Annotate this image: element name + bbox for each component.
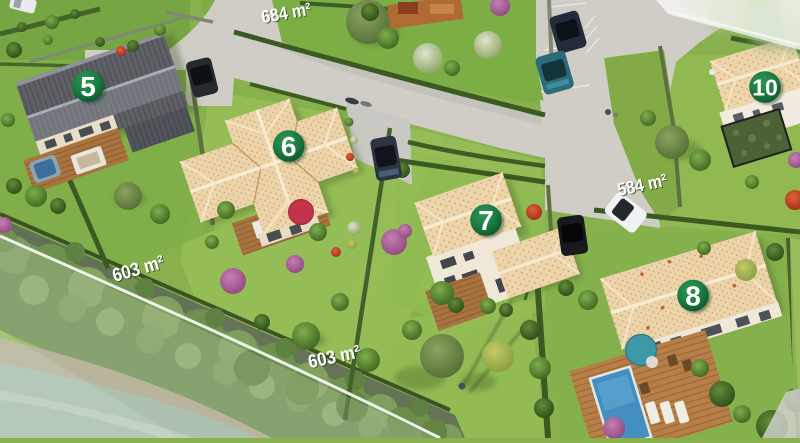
svg-text:6: 6 <box>281 131 297 162</box>
svg-text:7: 7 <box>478 205 494 236</box>
svg-text:10: 10 <box>752 75 778 101</box>
svg-text:8: 8 <box>685 281 701 312</box>
svg-text:5: 5 <box>80 71 96 102</box>
